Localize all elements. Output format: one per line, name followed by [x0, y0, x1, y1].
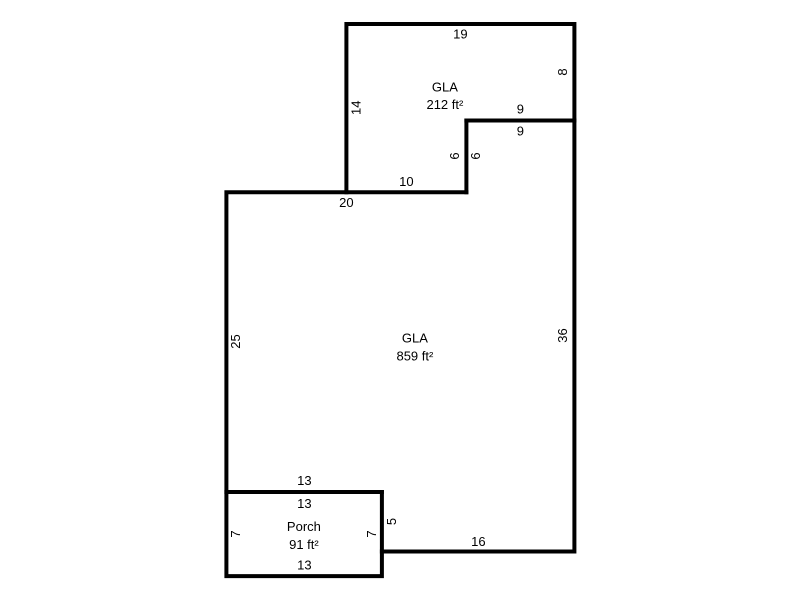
svg-text:36: 36 [555, 328, 570, 342]
svg-text:9: 9 [517, 123, 524, 138]
svg-text:GLA: GLA [402, 331, 428, 346]
svg-text:Porch: Porch [287, 519, 321, 534]
svg-text:7: 7 [228, 530, 243, 537]
svg-text:859 ft²: 859 ft² [396, 348, 434, 363]
svg-text:16: 16 [471, 534, 485, 549]
svg-text:9: 9 [517, 102, 524, 117]
svg-text:91 ft²: 91 ft² [289, 537, 319, 552]
svg-text:GLA: GLA [432, 80, 458, 95]
svg-text:14: 14 [348, 100, 363, 114]
svg-text:13: 13 [297, 496, 311, 511]
svg-text:13: 13 [297, 473, 311, 488]
svg-text:10: 10 [399, 174, 413, 189]
svg-text:6: 6 [447, 152, 462, 159]
svg-text:6: 6 [468, 152, 483, 159]
svg-text:19: 19 [453, 27, 467, 42]
svg-text:7: 7 [364, 530, 379, 537]
svg-text:5: 5 [384, 518, 399, 525]
svg-text:25: 25 [228, 334, 243, 348]
svg-text:212 ft²: 212 ft² [426, 97, 464, 112]
svg-text:13: 13 [297, 557, 311, 572]
svg-text:20: 20 [339, 195, 353, 210]
svg-text:8: 8 [555, 68, 570, 75]
